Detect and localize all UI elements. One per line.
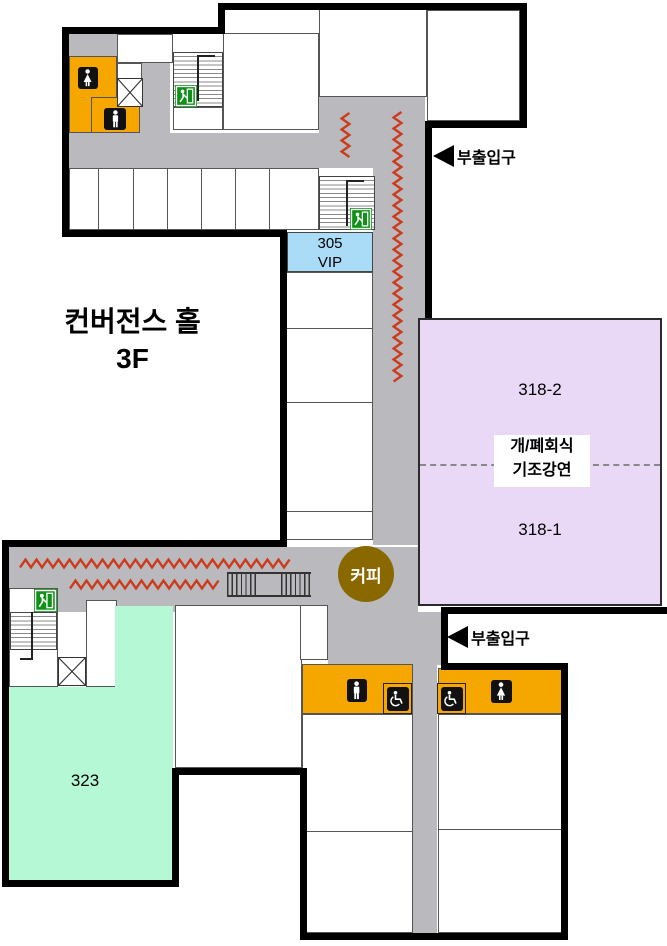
zigzag-mark	[392, 112, 403, 382]
wall	[520, 3, 527, 128]
event-line2: 기조강연	[494, 459, 590, 483]
stairs-rail	[31, 612, 33, 660]
room-divider	[286, 402, 372, 403]
zigzag-mark	[340, 113, 351, 159]
wall	[2, 880, 179, 887]
stairs-rail	[346, 180, 348, 226]
wheelchair-icon-square	[387, 687, 409, 711]
wall	[172, 768, 307, 775]
room-305-number: 305	[288, 234, 372, 253]
wall	[300, 770, 307, 940]
sub-entrance-bottom: 부출입구	[447, 625, 530, 649]
event-line1: 개/폐회식	[494, 435, 590, 459]
wheelchair-restroom-icon	[383, 683, 412, 714]
zigzag-mark	[70, 579, 221, 590]
stairs-bottom-left	[10, 612, 57, 650]
room-305-name: VIP	[288, 253, 372, 272]
wall	[2, 540, 287, 547]
floor-plan-3f: 305 VIP 318-2 개/폐회식 기조강연 318-1 323	[0, 0, 667, 946]
floor-title: 컨버전스 홀 3F	[25, 303, 240, 377]
corridor-upper-band	[69, 133, 425, 168]
room-divider	[201, 169, 202, 229]
hall-318: 318-2 개/폐회식 기조강연 318-1	[418, 318, 662, 606]
female-restroom-icon	[78, 67, 98, 89]
room-under-stairs1	[173, 107, 223, 130]
wall	[218, 3, 527, 10]
room-divider	[98, 169, 99, 229]
corridor-bottom-vertical	[413, 665, 437, 933]
wall	[280, 230, 287, 547]
room-top-a	[223, 33, 319, 130]
room-column-mid	[285, 272, 373, 540]
wall	[62, 27, 225, 34]
room-305-vip: 305 VIP	[287, 232, 373, 272]
room-top-right	[427, 10, 520, 121]
room-divider	[286, 511, 372, 512]
room-bottom-right-block	[438, 714, 562, 933]
room-divider	[133, 169, 134, 229]
wall	[561, 663, 568, 940]
wall	[172, 768, 179, 887]
room-column-left-small	[86, 600, 117, 687]
corridor-lower-junction	[328, 612, 441, 665]
room-row-small-rooms	[69, 168, 319, 230]
stairs-rail	[197, 55, 215, 57]
escalator-hatch	[281, 574, 311, 595]
wheelchair-icon-square	[441, 687, 463, 711]
male-restroom-icon	[104, 108, 126, 130]
stairs-rail	[346, 180, 364, 182]
stairs-rail	[20, 658, 33, 660]
room-323-label: 323	[40, 771, 130, 791]
room-divider	[269, 169, 270, 229]
male-restroom-icon	[347, 679, 367, 702]
elevator-x-icon	[59, 658, 85, 685]
coffee-label: 커피	[350, 562, 381, 587]
sub-entrance-top: 부출입구	[433, 144, 516, 168]
room-beside-323-ext	[300, 605, 328, 660]
hall-318-event-label: 개/폐회식 기조강연	[494, 435, 590, 487]
escalator-hatch	[227, 574, 257, 595]
wheelchair-restroom-icon	[437, 683, 466, 714]
hall-318-2-label: 318-2	[420, 380, 660, 400]
wall	[441, 607, 667, 614]
room-divider	[439, 829, 561, 830]
wall	[300, 933, 568, 940]
room-divider	[286, 328, 372, 329]
floor-title-line1: 컨버전스 홀	[25, 303, 240, 340]
elevator-x-icon	[118, 79, 142, 106]
room-beside-323	[175, 605, 302, 768]
hall-318-1-label: 318-1	[420, 520, 660, 540]
wall	[425, 121, 432, 318]
room-divider	[303, 831, 412, 832]
exit-sign-icon	[175, 85, 197, 107]
corridor-notch-topleft	[69, 34, 117, 56]
escalator	[227, 572, 311, 597]
room-bottom-left-block	[302, 714, 413, 933]
room-top-b	[319, 3, 427, 97]
zigzag-mark	[20, 558, 291, 569]
exit-sign-icon	[350, 208, 372, 230]
wall	[2, 540, 9, 887]
floor-title-line2: 3F	[25, 340, 240, 377]
left-arrow-icon	[433, 145, 454, 167]
room-divider	[235, 169, 236, 229]
corridor-top-vertical	[140, 62, 170, 133]
elevator-bottom	[58, 657, 86, 686]
left-arrow-icon	[447, 626, 468, 648]
room-topleft-small	[117, 34, 173, 63]
sub-entrance-label: 부출입구	[457, 144, 516, 168]
sub-entrance-label: 부출입구	[471, 625, 530, 649]
wall	[62, 230, 287, 237]
coffee-stand: 커피	[338, 546, 394, 602]
wall	[441, 663, 568, 670]
female-restroom-icon	[491, 680, 512, 703]
room-divider	[167, 169, 168, 229]
elevator-top	[117, 78, 143, 107]
stairs-rail	[197, 55, 199, 101]
wall	[427, 121, 527, 128]
exit-sign-icon	[34, 589, 57, 612]
wall	[62, 27, 69, 237]
